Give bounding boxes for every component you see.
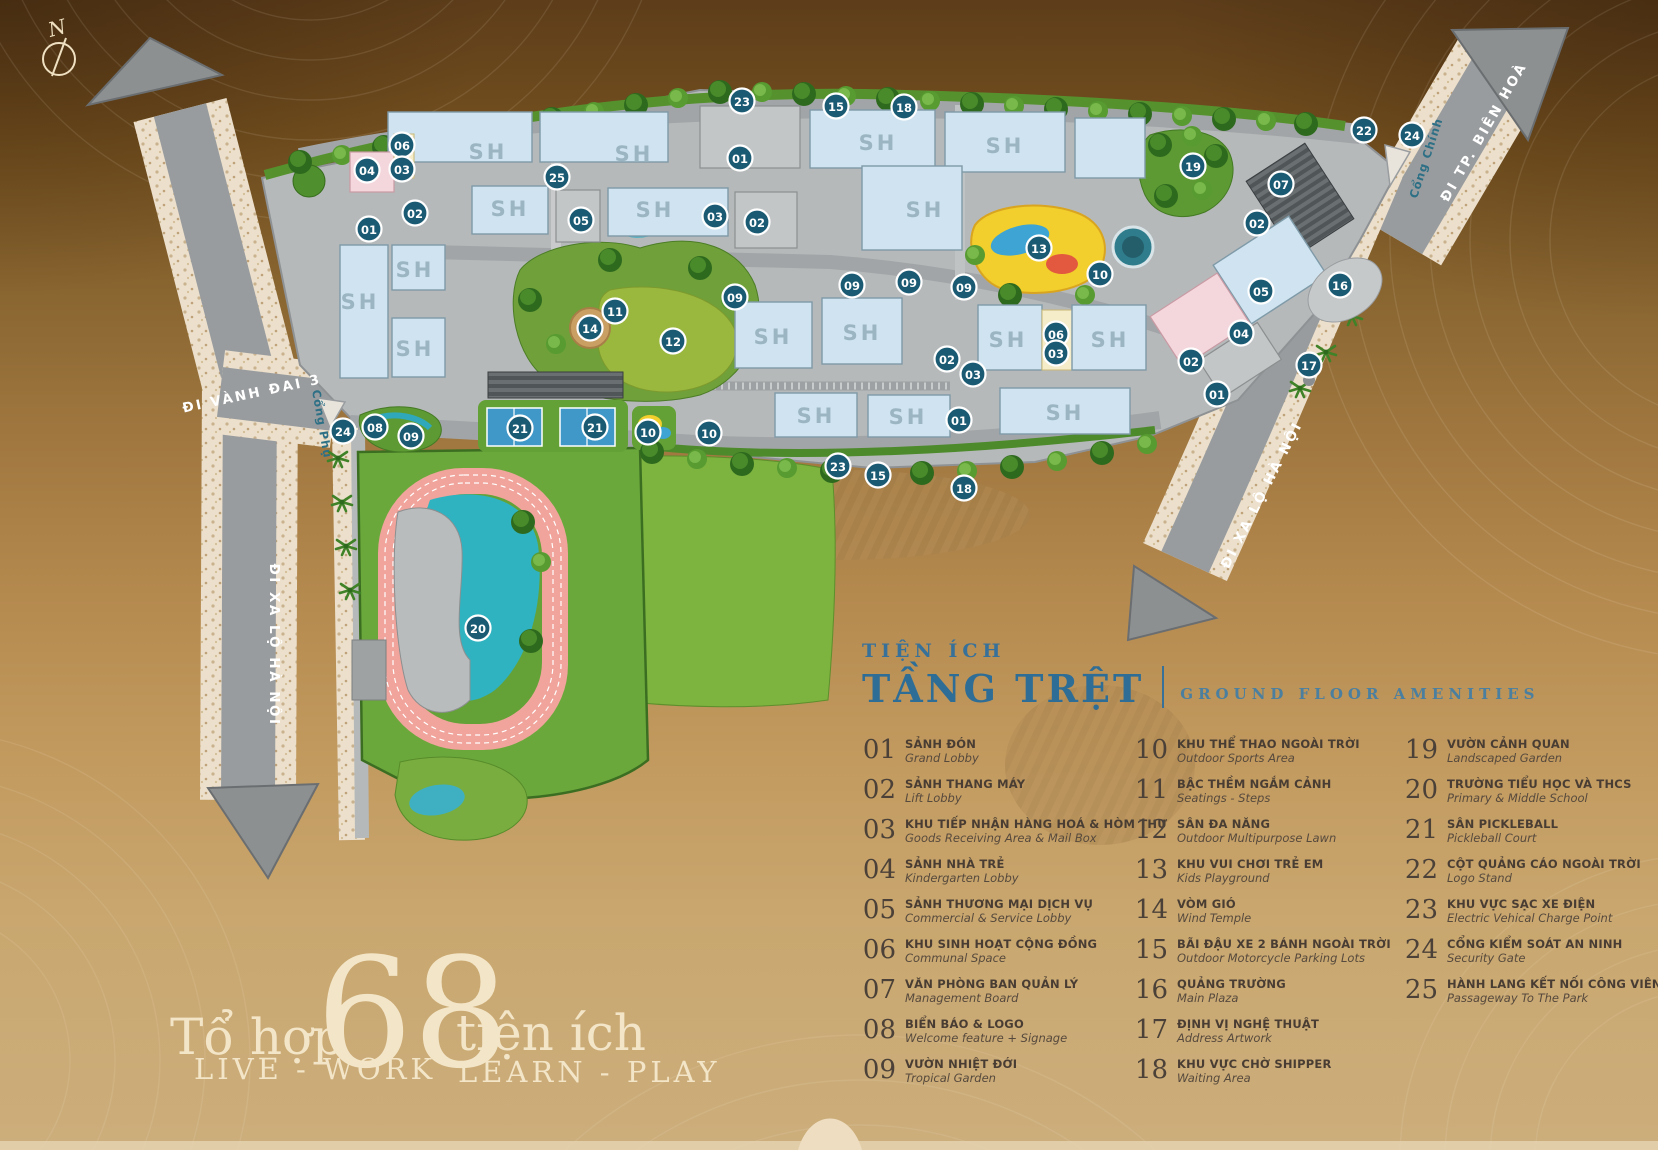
map-badge-09: 09 — [897, 270, 922, 295]
building-label: SH — [615, 142, 654, 166]
legend-item-11: 11BẬC THỀM NGẮM CẢNHSeatings - Steps — [1118, 776, 1388, 816]
map-badge-16: 16 — [1328, 273, 1353, 298]
map-badge-18: 18 — [892, 95, 917, 120]
svg-text:18: 18 — [956, 482, 972, 496]
building-label: SH — [986, 134, 1025, 158]
legend-item-name-vi: SÂN PICKLEBALL — [1447, 817, 1558, 831]
compass-north-label: N — [44, 14, 70, 42]
legend-item-21: 21SÂN PICKLEBALLPickleball Court — [1388, 816, 1658, 856]
map-badge-18: 18 — [952, 476, 977, 501]
legend-item-number: 07 — [846, 977, 905, 1003]
legend-item-number: 22 — [1388, 857, 1447, 883]
map-badge-02: 02 — [745, 210, 770, 235]
legend-item-number: 21 — [1388, 817, 1447, 843]
map-badge-15: 15 — [824, 94, 849, 119]
legend-item-name-vi: SẢNH THANG MÁY — [905, 777, 1025, 791]
svg-text:04: 04 — [1233, 327, 1249, 341]
legend-item-number: 18 — [1118, 1057, 1177, 1083]
legend-divider — [1162, 666, 1164, 708]
map-badge-03: 03 — [961, 362, 986, 387]
map-badge-10: 10 — [636, 420, 661, 445]
building-label: SH — [797, 404, 836, 428]
map-badge-09: 09 — [399, 424, 424, 449]
map-badge-24: 24 — [1400, 123, 1425, 148]
legend-item-name-vi: VĂN PHÒNG BAN QUẢN LÝ — [905, 977, 1078, 991]
legend-item-name-en: Management Board — [905, 991, 1078, 1006]
legend-item-name-vi: VÒM GIÓ — [1177, 897, 1251, 911]
legend-item-name-en: Commercial & Service Lobby — [905, 911, 1093, 926]
svg-text:13: 13 — [1031, 242, 1047, 256]
legend-item-07: 07VĂN PHÒNG BAN QUẢN LÝManagement Board — [846, 976, 1116, 1016]
legend-item-name-vi: KHU VUI CHƠI TRẺ EM — [1177, 857, 1323, 871]
map-badge-01: 01 — [357, 217, 382, 242]
legend-item-name-vi: KHU VỰC SẠC XE ĐIỆN — [1447, 897, 1612, 911]
legend-item-number: 13 — [1118, 857, 1177, 883]
svg-text:02: 02 — [749, 216, 765, 230]
legend-item-name-en: Communal Space — [905, 951, 1097, 966]
svg-text:19: 19 — [1185, 160, 1201, 174]
map-badge-04: 04 — [1229, 321, 1254, 346]
legend-item-number: 05 — [846, 897, 905, 923]
legend-item-name-vi: KHU SINH HOẠT CỘNG ĐỒNG — [905, 937, 1097, 951]
map-badge-01: 01 — [728, 146, 753, 171]
svg-text:16: 16 — [1332, 279, 1348, 293]
svg-text:24: 24 — [1404, 129, 1420, 143]
map-badge-05: 05 — [569, 208, 594, 233]
legend-kicker: TIỆN ÍCH — [862, 640, 1540, 662]
building-label: SH — [843, 321, 882, 345]
legend-item-number: 14 — [1118, 897, 1177, 923]
legend-header: TIỆN ÍCH TẦNG TRỆT GROUND FLOOR AMENITIE… — [862, 640, 1540, 708]
legend-item-name-vi: KHU VỰC CHỜ SHIPPER — [1177, 1057, 1332, 1071]
legend-item-name-vi: QUẢNG TRƯỜNG — [1177, 977, 1286, 991]
svg-text:09: 09 — [844, 279, 860, 293]
svg-text:03: 03 — [1048, 347, 1064, 361]
legend-item-number: 09 — [846, 1057, 905, 1083]
legend-item-name-vi: CỘT QUẢNG CÁO NGOÀI TRỜI — [1447, 857, 1641, 871]
legend-item-name-en: Kids Playground — [1177, 871, 1323, 886]
legend-item-02: 02SẢNH THANG MÁYLift Lobby — [846, 776, 1116, 816]
legend-item-number: 16 — [1118, 977, 1177, 1003]
svg-text:24: 24 — [335, 425, 351, 439]
legend-item-name-en: Pickleball Court — [1447, 831, 1558, 846]
legend-item-name-vi: BẬC THỀM NGẮM CẢNH — [1177, 777, 1331, 791]
svg-text:03: 03 — [707, 210, 723, 224]
legend-item-name-en: Passageway To The Park — [1447, 991, 1658, 1006]
legend-item-name-en: Electric Vehical Charge Point — [1447, 911, 1612, 926]
legend-item-name-en: Outdoor Motorcycle Parking Lots — [1177, 951, 1391, 966]
building-label: SH — [636, 198, 675, 222]
building-label: SH — [396, 258, 435, 282]
legend-item-name-en: Outdoor Sports Area — [1177, 751, 1360, 766]
legend-item-name-vi: VƯỜN NHIỆT ĐỚI — [905, 1057, 1017, 1071]
legend-column-2: 10KHU THỂ THAO NGOÀI TRỜIOutdoor Sports … — [1118, 736, 1388, 1096]
legend-item-name-vi: BIỂN BÁO & LOGO — [905, 1017, 1067, 1031]
svg-text:15: 15 — [870, 469, 886, 483]
svg-text:09: 09 — [956, 281, 972, 295]
map-badge-04: 04 — [355, 158, 380, 183]
building-label: SH — [396, 337, 435, 361]
map-badge-02: 02 — [1245, 211, 1270, 236]
svg-text:12: 12 — [665, 335, 681, 349]
legend-item-10: 10KHU THỂ THAO NGOÀI TRỜIOutdoor Sports … — [1118, 736, 1388, 776]
map-badge-08: 08 — [363, 415, 388, 440]
legend-item-number: 12 — [1118, 817, 1177, 843]
map-badge-19: 19 — [1181, 154, 1206, 179]
map-badge-01: 01 — [947, 408, 972, 433]
legend-column-3: 19VƯỜN CẢNH QUANLandscaped Garden20TRƯỜN… — [1388, 736, 1658, 1016]
legend-item-06: 06KHU SINH HOẠT CỘNG ĐỒNGCommunal Space — [846, 936, 1116, 976]
map-badge-10: 10 — [697, 421, 722, 446]
legend-item-name-en: Waiting Area — [1177, 1071, 1332, 1086]
legend-item-14: 14VÒM GIÓWind Temple — [1118, 896, 1388, 936]
legend-item-name-en: Wind Temple — [1177, 911, 1251, 926]
building-label: SH — [859, 131, 898, 155]
svg-text:09: 09 — [901, 276, 917, 290]
compass-icon: N — [43, 14, 75, 76]
svg-text:10: 10 — [701, 427, 717, 441]
map-badge-01: 01 — [1205, 382, 1230, 407]
svg-text:06: 06 — [394, 139, 410, 153]
legend-item-name-en: Address Artwork — [1177, 1031, 1319, 1046]
map-badge-02: 02 — [403, 201, 428, 226]
map-badge-17: 17 — [1297, 353, 1322, 378]
map-badge-23: 23 — [826, 454, 851, 479]
svg-text:09: 09 — [727, 291, 743, 305]
legend-item-name-en: Security Gate — [1447, 951, 1622, 966]
legend-item-name-vi: SẢNH ĐÓN — [905, 737, 979, 751]
building-label: SH — [469, 140, 508, 164]
svg-text:05: 05 — [1253, 285, 1269, 299]
road-label: ĐI XA LỘ HÀ NỘI — [266, 563, 284, 726]
legend-item-name-en: Tropical Garden — [905, 1071, 1017, 1086]
svg-text:15: 15 — [828, 100, 844, 114]
legend-item-name-vi: VƯỜN CẢNH QUAN — [1447, 737, 1570, 751]
svg-text:10: 10 — [1092, 268, 1108, 282]
svg-text:18: 18 — [896, 101, 912, 115]
legend-item-number: 19 — [1388, 737, 1447, 763]
legend-item-25: 25HÀNH LANG KẾT NỐI CÔNG VIÊNPassageway … — [1388, 976, 1658, 1016]
svg-text:01: 01 — [1209, 388, 1225, 402]
legend-item-number: 10 — [1118, 737, 1177, 763]
legend-item-name-en: Outdoor Multipurpose Lawn — [1177, 831, 1336, 846]
svg-text:17: 17 — [1301, 359, 1317, 373]
legend-column-1: 01SẢNH ĐÓNGrand Lobby02SẢNH THANG MÁYLif… — [846, 736, 1116, 1096]
legend-item-18: 18KHU VỰC CHỜ SHIPPERWaiting Area — [1118, 1056, 1388, 1096]
legend-item-number: 03 — [846, 817, 905, 843]
legend-item-24: 24CỔNG KIỂM SOÁT AN NINHSecurity Gate — [1388, 936, 1658, 976]
svg-text:02: 02 — [939, 353, 955, 367]
svg-text:25: 25 — [549, 171, 565, 185]
map-badge-25: 25 — [545, 165, 570, 190]
legend-item-number: 23 — [1388, 897, 1447, 923]
svg-text:22: 22 — [1356, 124, 1372, 138]
legend-item-name-vi: BÃI ĐẬU XE 2 BÁNH NGOÀI TRỜI — [1177, 937, 1391, 951]
building-label: SH — [989, 328, 1028, 352]
map-badge-07: 07 — [1269, 172, 1294, 197]
map-badge-03: 03 — [1044, 341, 1069, 366]
legend-subtitle: GROUND FLOOR AMENITIES — [1180, 685, 1539, 708]
legend-item-name-en: Welcome feature + Signage — [905, 1031, 1067, 1046]
svg-text:02: 02 — [1249, 217, 1265, 231]
legend-item-15: 15BÃI ĐẬU XE 2 BÁNH NGOÀI TRỜIOutdoor Mo… — [1118, 936, 1388, 976]
map-badge-10: 10 — [1088, 262, 1113, 287]
map-badge-14: 14 — [578, 316, 603, 341]
legend-item-name-vi: TRƯỜNG TIỂU HỌC VÀ THCS — [1447, 777, 1632, 791]
svg-text:03: 03 — [965, 368, 981, 382]
svg-text:10: 10 — [640, 426, 656, 440]
map-badge-11: 11 — [603, 299, 628, 324]
legend-item-name-en: Kindergarten Lobby — [905, 871, 1019, 886]
map-badge-21: 21 — [508, 416, 533, 441]
svg-text:01: 01 — [732, 152, 748, 166]
svg-text:08: 08 — [367, 421, 383, 435]
legend-item-number: 15 — [1118, 937, 1177, 963]
svg-text:01: 01 — [951, 414, 967, 428]
svg-text:01: 01 — [361, 223, 377, 237]
legend-item-name-vi: ĐỊNH VỊ NGHỆ THUẬT — [1177, 1017, 1319, 1031]
legend-item-01: 01SẢNH ĐÓNGrand Lobby — [846, 736, 1116, 776]
legend-item-05: 05SẢNH THƯƠNG MẠI DỊCH VỤCommercial & Se… — [846, 896, 1116, 936]
svg-text:07: 07 — [1273, 178, 1289, 192]
map-badge-12: 12 — [661, 329, 686, 354]
building-label: SH — [754, 325, 793, 349]
legend-item-number: 24 — [1388, 937, 1447, 963]
legend-item-number: 02 — [846, 777, 905, 803]
svg-text:20: 20 — [470, 622, 486, 636]
legend-item-name-en: Logo Stand — [1447, 871, 1641, 886]
legend-item-name-en: Seatings - Steps — [1177, 791, 1331, 806]
building-label: SH — [1046, 401, 1085, 425]
map-badge-03: 03 — [390, 157, 415, 182]
bottom-strip — [0, 1141, 1658, 1150]
map-badge-09: 09 — [952, 275, 977, 300]
svg-text:23: 23 — [830, 460, 846, 474]
legend-item-16: 16QUẢNG TRƯỜNGMain Plaza — [1118, 976, 1388, 1016]
svg-text:05: 05 — [573, 214, 589, 228]
tagline-live-work: LIVE - WORK — [194, 1052, 436, 1086]
map-badge-05: 05 — [1249, 279, 1274, 304]
building-label: SH — [889, 405, 928, 429]
legend-item-name-en: Primary & Middle School — [1447, 791, 1632, 806]
svg-text:21: 21 — [512, 422, 528, 436]
svg-text:11: 11 — [607, 305, 623, 319]
legend-item-12: 12SÂN ĐA NĂNGOutdoor Multipurpose Lawn — [1118, 816, 1388, 856]
legend-item-name-en: Landscaped Garden — [1447, 751, 1570, 766]
svg-text:23: 23 — [734, 95, 750, 109]
map-badge-22: 22 — [1352, 118, 1377, 143]
map-badge-02: 02 — [935, 347, 960, 372]
building-label: SH — [341, 290, 380, 314]
map-badge-13: 13 — [1027, 236, 1052, 261]
legend-item-name-vi: SẢNH THƯƠNG MẠI DỊCH VỤ — [905, 897, 1093, 911]
legend-item-number: 20 — [1388, 777, 1447, 803]
map-badge-03: 03 — [703, 204, 728, 229]
svg-text:02: 02 — [1183, 355, 1199, 369]
legend-item-number: 06 — [846, 937, 905, 963]
map-badge-09: 09 — [723, 285, 748, 310]
map-badge-23: 23 — [730, 89, 755, 114]
legend-item-number: 04 — [846, 857, 905, 883]
legend-item-04: 04SẢNH NHÀ TRẺKindergarten Lobby — [846, 856, 1116, 896]
map-badge-24: 24 — [331, 419, 356, 444]
map-badge-09: 09 — [840, 273, 865, 298]
legend-item-19: 19VƯỜN CẢNH QUANLandscaped Garden — [1388, 736, 1658, 776]
map-badge-06: 06 — [390, 133, 415, 158]
legend-item-name-en: Main Plaza — [1177, 991, 1286, 1006]
legend-item-name-vi: KHU THỂ THAO NGOÀI TRỜI — [1177, 737, 1360, 751]
legend-item-17: 17ĐỊNH VỊ NGHỆ THUẬTAddress Artwork — [1118, 1016, 1388, 1056]
map-badge-02: 02 — [1179, 349, 1204, 374]
legend-item-name-vi: HÀNH LANG KẾT NỐI CÔNG VIÊN — [1447, 977, 1658, 991]
tagline-suffix: tiện ích — [456, 1004, 646, 1062]
legend-title: TẦNG TRỆT — [862, 670, 1144, 708]
building-label: SH — [906, 198, 945, 222]
legend-item-number: 11 — [1118, 777, 1177, 803]
legend-item-name-vi: CỔNG KIỂM SOÁT AN NINH — [1447, 937, 1622, 951]
legend-item-name-en: Grand Lobby — [905, 751, 979, 766]
legend-item-03: 03KHU TIẾP NHẬN HÀNG HOÁ & HÒM THƯGoods … — [846, 816, 1116, 856]
legend-item-number: 01 — [846, 737, 905, 763]
svg-text:14: 14 — [582, 322, 598, 336]
legend-item-number: 08 — [846, 1017, 905, 1043]
map-badge-15: 15 — [866, 463, 891, 488]
legend-item-20: 20TRƯỜNG TIỂU HỌC VÀ THCSPrimary & Middl… — [1388, 776, 1658, 816]
tagline-learn-play: LEARN - PLAY — [458, 1055, 721, 1089]
legend-item-23: 23KHU VỰC SẠC XE ĐIỆNElectric Vehical Ch… — [1388, 896, 1658, 936]
legend-item-number: 25 — [1388, 977, 1447, 1003]
svg-text:09: 09 — [403, 430, 419, 444]
building-label: SH — [491, 197, 530, 221]
legend-item-13: 13KHU VUI CHƠI TRẺ EMKids Playground — [1118, 856, 1388, 896]
svg-text:02: 02 — [407, 207, 423, 221]
map-badge-20: 20 — [466, 616, 491, 641]
legend-item-08: 08BIỂN BÁO & LOGOWelcome feature + Signa… — [846, 1016, 1116, 1056]
building-label: SH — [1091, 328, 1130, 352]
map-badge-21: 21 — [583, 415, 608, 440]
svg-text:03: 03 — [394, 163, 410, 177]
svg-text:04: 04 — [359, 164, 375, 178]
svg-text:21: 21 — [587, 421, 603, 435]
legend-item-22: 22CỘT QUẢNG CÁO NGOÀI TRỜILogo Stand — [1388, 856, 1658, 896]
legend-item-name-vi: SÂN ĐA NĂNG — [1177, 817, 1336, 831]
legend-item-09: 09VƯỜN NHIỆT ĐỚITropical Garden — [846, 1056, 1116, 1096]
legend-item-name-vi: SẢNH NHÀ TRẺ — [905, 857, 1019, 871]
legend-item-number: 17 — [1118, 1017, 1177, 1043]
legend-item-name-en: Lift Lobby — [905, 791, 1025, 806]
